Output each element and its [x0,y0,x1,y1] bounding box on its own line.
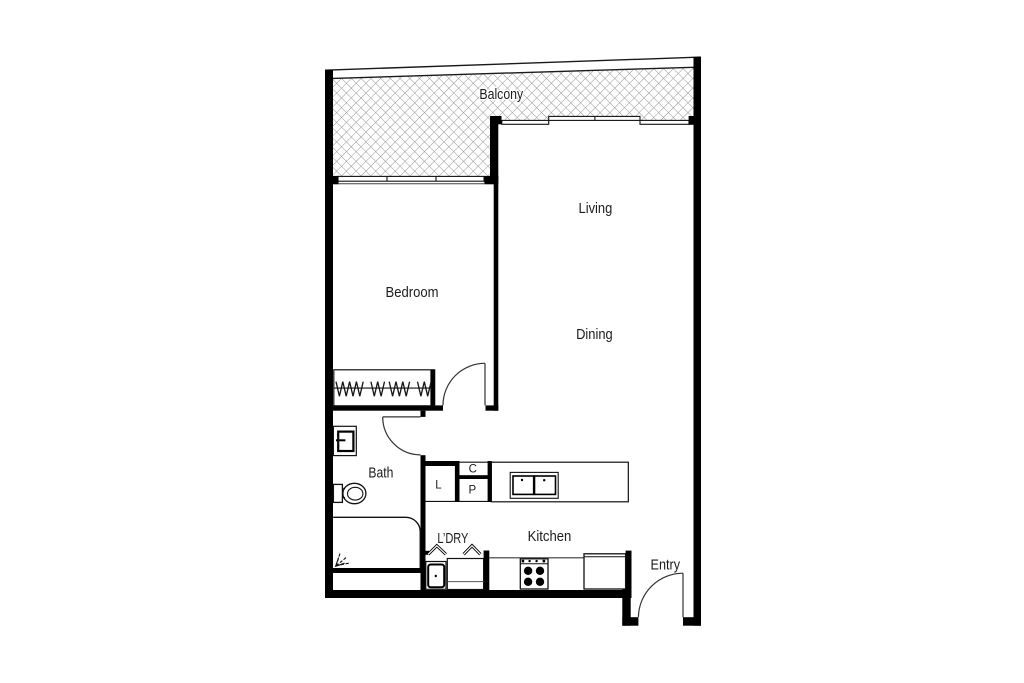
svg-text:Kitchen: Kitchen [528,528,572,545]
svg-text:Balcony: Balcony [479,87,523,103]
svg-text:P: P [468,485,476,497]
svg-text:Living: Living [579,200,613,217]
svg-text:C: C [469,463,477,475]
svg-text:Entry: Entry [651,557,681,574]
svg-text:L: L [435,480,442,492]
svg-text:Bath: Bath [368,465,393,482]
svg-text:L’DRY: L’DRY [437,531,468,547]
svg-text:Bedroom: Bedroom [386,284,439,301]
svg-text:Dining: Dining [576,326,613,343]
